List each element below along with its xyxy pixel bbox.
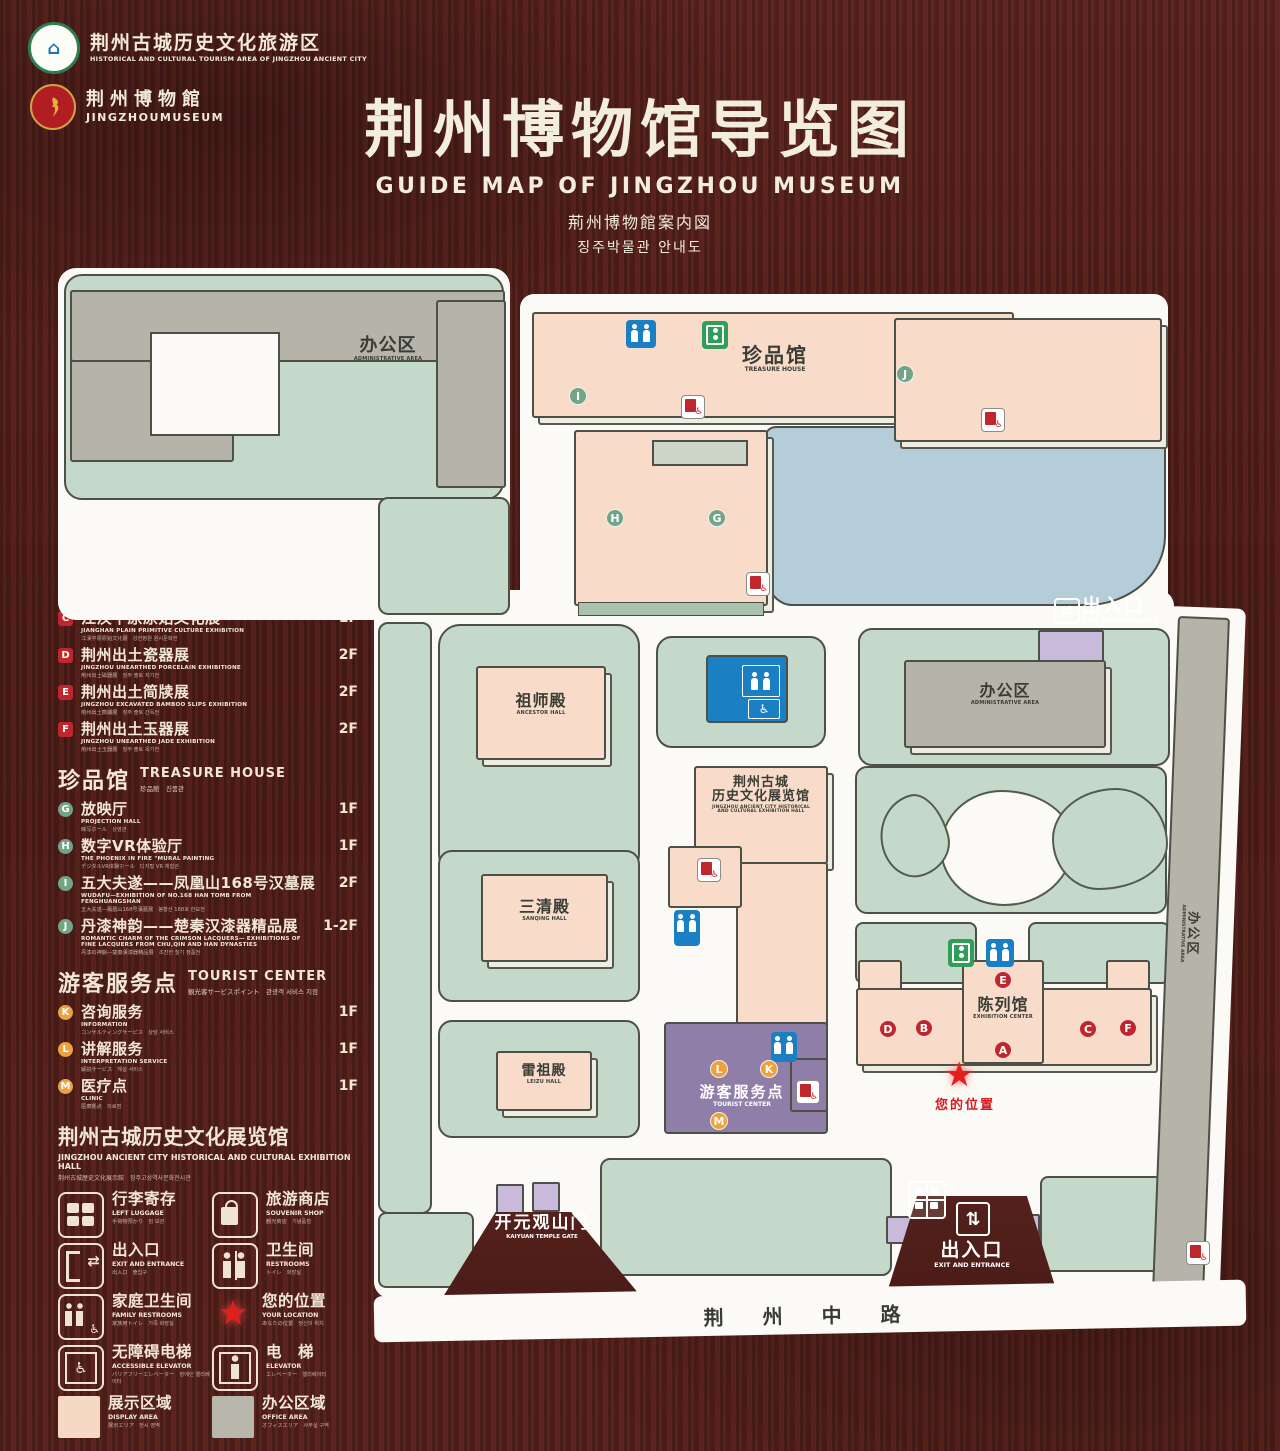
item-name-sub: 映写ホール 상영관 (81, 826, 141, 833)
admin-top-label: 办公区 ADMINISTRATIVE AREA (308, 336, 468, 362)
hall-note-en: JINGZHOU ANCIENT CITY HISTORICAL AND CUL… (58, 1153, 372, 1171)
legend-item: L 讲解服务 INTERPRETATION SERVICE 解説サービス 해설 … (58, 1041, 372, 1073)
item-name-en: CLINIC (81, 1096, 128, 1102)
item-name-sub: 解説サービス 해설 서비스 (81, 1066, 167, 1073)
ancestor-hall-label: 祖师殿 ANCESTOR HALL (476, 692, 606, 716)
symbol-name-en: ELEVATOR (266, 1363, 326, 1370)
item-name-en: JIANGHAN PLAIN PRIMITIVE CULTURE EXHIBIT… (81, 628, 244, 634)
symbol-name-sub: 家族用トイレ 가족 화장실 (112, 1320, 192, 1327)
symbol-legend-item: 出入口 EXIT AND ENTRANCE 出入口 출입구 (58, 1243, 212, 1289)
map-marker: K (760, 1060, 778, 1078)
symbol-name-sub: エレベーター 엘리베이터 (266, 1371, 326, 1378)
symbol-name-en: SOUVENIR SHOP (266, 1210, 330, 1217)
symbol-name-zh: 出入口 (112, 1243, 184, 1259)
family-restrooms-icon (58, 1294, 104, 1340)
leizu-hall-label: 雷祖殿 LEIZU HALL (496, 1064, 592, 1086)
admin-right-label: 办公区 ADMINISTRATIVE AREA (904, 682, 1106, 706)
elevator-icon (948, 939, 974, 967)
letter-badge: D (58, 648, 73, 663)
museum-logo-icon (30, 84, 76, 130)
map-marker: D (879, 1020, 897, 1038)
symbol-name-zh: 您的位置 (262, 1294, 326, 1310)
map-marker: H (606, 509, 624, 527)
symbol-legend-item: 无障碍电梯 ACCESSIBLE ELEVATOR バリアフリーエレベーター 장… (58, 1345, 212, 1391)
gate-post (532, 1182, 560, 1212)
floor-badge: 2F (339, 647, 358, 663)
exit-bottom-label: 出入口 EXIT AND ENTRANCE (902, 1240, 1042, 1269)
item-name-zh: 数字VR体验厅 (81, 838, 214, 855)
accessible-elevator-icon (981, 408, 1005, 432)
symbol-name-zh: 家庭卫生间 (112, 1294, 192, 1310)
item-name-en: JINGZHOU EXCAVATED BAMBOO SLIPS EXHIBITI… (81, 702, 247, 708)
accessible-elevator-icon (58, 1345, 104, 1391)
page-subtitle-en: GUIDE MAP OF JINGZHOU MUSEUM (240, 174, 1040, 199)
restroom-icon (674, 910, 700, 946)
your-location-icon (212, 1294, 254, 1336)
your-location-star-icon: ★ (944, 1058, 974, 1092)
item-name-zh: 荆州出土简牍展 (81, 684, 247, 701)
admin-courtyard (150, 332, 280, 436)
map-marker: A (994, 1041, 1012, 1059)
sanqing-hall-label: 三清殿 SANQING HALL (481, 898, 608, 922)
item-name-sub: 医療拠点 의료점 (81, 1103, 128, 1110)
symbol-name-sub: バリアフリーエレベーター 장애인 엘리베이터 (112, 1371, 212, 1385)
legend-item: F 荆州出土玉器展 JINGZHOU UNEARTHED JADE EXHIBI… (58, 721, 372, 753)
lawn (1040, 1176, 1170, 1272)
item-name-en: JINGZHOU UNEARTHED JADE EXHIBITION (81, 739, 215, 745)
ancient-city-exhibition-hall-label: 荆州古城 历史文化展览馆 JINGZHOU ANCIENT CITY HISTO… (690, 776, 832, 815)
exhibition-center-label: 陈列馆 EXHIBITION CENTER (928, 996, 1078, 1020)
symbol-name-en: EXIT AND ENTRANCE (112, 1261, 184, 1268)
item-name-sub: 荊州出土簡牘展 징주 출토 간독전 (81, 709, 247, 716)
restrooms-icon (212, 1243, 258, 1289)
item-name-zh: 讲解服务 (81, 1041, 167, 1058)
section-title-en: TOURIST CENTER (188, 969, 327, 984)
letter-badge: G (58, 802, 73, 817)
item-name-sub: 江漢平原原始文化展 강한평원 원시문화전 (81, 635, 244, 642)
symbol-name-zh: 办公区域 (262, 1396, 329, 1412)
symbol-name-en: LEFT LUGGAGE (112, 1210, 176, 1217)
legend-item: H 数字VR体验厅 THE PHOENIX IN FIRE "MURAL PAI… (58, 838, 372, 870)
letter-badge: L (58, 1042, 73, 1057)
map-marker: B (915, 1019, 933, 1037)
map-marker: L (710, 1060, 728, 1078)
elevator-icon (702, 321, 728, 349)
floor-badge: 1F (339, 1004, 358, 1020)
map-marker: E (994, 971, 1012, 989)
symbol-name-sub: あなたの位置 당신의 위치 (262, 1320, 326, 1327)
restroom-icon (626, 320, 656, 348)
map-marker: J (896, 365, 914, 383)
symbol-name-en: OFFICE AREA (262, 1414, 329, 1421)
tourism-area-logo-icon: ⌂ (28, 22, 80, 74)
symbol-name-en: ACCESSIBLE ELEVATOR (112, 1363, 212, 1370)
your-location-label: 您的位置 (918, 1094, 1012, 1113)
item-name-zh: 荆州出土玉器展 (81, 721, 215, 738)
floor-badge: 2F (339, 875, 358, 891)
item-name-en: JINGZHOU UNEARTHED PORCELAIN EXHIBITIONE (81, 665, 241, 671)
legend-item: G 放映厅 PROJECTION HALL 映写ホール 상영관 1F (58, 801, 372, 833)
letter-badge: K (58, 1005, 73, 1020)
exit-entrance-icon (58, 1243, 104, 1289)
symbol-name-en: FAMILY RESTROOMS (112, 1312, 192, 1319)
symbol-name-sub: 展示エリア 전시 영역 (108, 1422, 172, 1429)
item-name-zh: 医疗点 (81, 1078, 128, 1095)
legend-section-treasure-house: 珍品馆 TREASURE HOUSE 珍品館 진품관 G 放映厅 PROJECT… (58, 763, 372, 956)
symbol-name-sub: 手荷物預かり 짐 보관 (112, 1218, 176, 1225)
letter-badge: F (58, 722, 73, 737)
legend-item: I 五大夫遂——凤凰山168号汉墓展 WUDAFU—EXHIBITION OF … (58, 875, 372, 913)
accessible-elevator-icon (1186, 1241, 1210, 1265)
item-name-sub: 荊州出土磁器展 징주 출토 자기전 (81, 672, 241, 679)
legend-item: M 医疗点 CLINIC 医療拠点 의료점 1F (58, 1078, 372, 1110)
letter-badge: H (58, 839, 73, 854)
floor-badge: 2F (339, 684, 358, 700)
tourism-area-logo: ⌂ 荆州古城历史文化旅游区 HISTORICAL AND CULTURAL TO… (28, 22, 367, 74)
legend-item: D 荆州出土瓷器展 JINGZHOU UNEARTHED PORCELAIN E… (58, 647, 372, 679)
tourism-area-name-en: HISTORICAL AND CULTURAL TOURISM AREA OF … (90, 55, 367, 63)
exit-entrance-icon: ⇅ (956, 1202, 990, 1236)
symbol-name-en: DISPLAY AREA (108, 1414, 172, 1421)
accessible-elevator-icon (681, 395, 705, 419)
tourism-area-name-zh: 荆州古城历史文化旅游区 (90, 33, 367, 54)
title-block: 荆州博物馆导览图 GUIDE MAP OF JINGZHOU MUSEUM 荊州… (240, 96, 1040, 257)
admin-building-top (436, 300, 506, 488)
symbol-legend-item: 展示区域 DISPLAY AREA 展示エリア 전시 영역 (58, 1396, 212, 1438)
section-title-sub: 珍品館 진품관 (140, 783, 286, 793)
item-name-zh: 放映厅 (81, 801, 141, 818)
map-marker: M (710, 1112, 728, 1130)
symbol-name-zh: 旅游商店 (266, 1192, 330, 1208)
symbol-legend-item: 卫生间 RESTROOMS トイレ 화장실 (212, 1243, 368, 1289)
letter-badge: E (58, 685, 73, 700)
museum-name-en: JINGZHOUMUSEUM (86, 111, 224, 124)
section-title-sub: 観光客サービスポイント 관광객 서비스 지점 (188, 986, 327, 996)
family-restroom-icon: ♿ (748, 699, 780, 719)
left-luggage-icon (58, 1192, 104, 1238)
accessible-elevator-icon (796, 1080, 820, 1104)
item-name-en: ROMANTIC CHARM OF THE CRIMSON LACQUERS— … (81, 936, 311, 948)
map-marker: G (708, 509, 726, 527)
road-label: 荆 州 中 路 (374, 1292, 1246, 1338)
accessible-elevator-icon (746, 572, 770, 596)
item-name-en: PROJECTION HALL (81, 819, 141, 825)
symbol-name-en: YOUR LOCATION (262, 1312, 326, 1319)
symbol-name-sub: 観光商店 기념품점 (266, 1218, 330, 1225)
restroom-icon (771, 1032, 797, 1062)
item-name-zh: 五大夫遂——凤凰山168号汉墓展 (81, 875, 315, 892)
restroom-icon (986, 939, 1014, 967)
lawn (378, 622, 432, 1214)
item-name-en: INTERPRETATION SERVICE (81, 1059, 167, 1065)
page-subtitle-ja: 荊州博物館案内図 (240, 209, 1040, 233)
museum-name-zh: 荆州博物館 (86, 90, 224, 110)
symbol-name-sub: 出入口 출입구 (112, 1269, 184, 1276)
symbol-legend-item: 行李寄存 LEFT LUGGAGE 手荷物預かり 짐 보관 (58, 1192, 212, 1238)
item-name-en: INFORMATION (81, 1022, 174, 1028)
letter-badge: J (58, 919, 73, 934)
map-marker: C (1079, 1020, 1097, 1038)
exit-entrance-icon: ⇄ (1054, 598, 1080, 624)
symbol-legend-item: 旅游商店 SOUVENIR SHOP 観光商店 기념품점 (212, 1192, 368, 1238)
legend-item: K 咨询服务 INFORMATION コンサルティングサービス 상담 서비스 1… (58, 1004, 372, 1036)
symbol-name-zh: 电 梯 (266, 1345, 326, 1361)
symbol-name-zh: 无障碍电梯 (112, 1345, 212, 1361)
symbol-legend-item: 您的位置 YOUR LOCATION あなたの位置 당신의 위치 (212, 1294, 368, 1340)
restroom-icon (742, 665, 780, 697)
item-name-zh: 咨询服务 (81, 1004, 174, 1021)
treasure-house-building (894, 318, 1162, 442)
floor-badge: 2F (339, 721, 358, 737)
letter-badge: M (58, 1079, 73, 1094)
kaiyuan-gate-label: 开元观山门 KAIYUAN TEMPLE GATE (442, 1214, 642, 1240)
page-subtitle-ko: 징주박물관 안내도 (240, 237, 1040, 257)
exit-top-label: 出入口 EXIT AND ENTRANCE (1082, 596, 1212, 625)
entrance-pad (1038, 630, 1104, 662)
section-title-zh: 珍品馆 (58, 763, 130, 795)
lawn (378, 497, 510, 615)
letter-badge: I (58, 876, 73, 891)
item-name-zh: 丹漆神韵——楚秦汉漆器精品展 (81, 918, 311, 935)
section-title-zh: 游客服务点 (58, 966, 178, 998)
floor-badge: 1F (339, 838, 358, 854)
item-name-sub: 荊州出土玉器展 징주 출토 옥기전 (81, 746, 215, 753)
symbols-legend: 行李寄存 LEFT LUGGAGE 手荷物預かり 짐 보관 旅游商店 SOUVE… (58, 1192, 372, 1438)
admin-strip-label: 办公区 ADMINISTRATIVE AREA (1179, 904, 1205, 963)
symbol-name-zh: 卫生间 (266, 1243, 314, 1259)
exhibition-hall-note: 荆州古城历史文化展览馆 JINGZHOU ANCIENT CITY HISTOR… (58, 1120, 372, 1182)
hall-note-zh: 荆州古城历史文化展览馆 (58, 1120, 372, 1150)
symbol-name-en: RESTROOMS (266, 1261, 314, 1268)
section-title-en: TREASURE HOUSE (140, 766, 286, 781)
hedge-strip (578, 602, 764, 616)
item-name-en: WUDAFU—EXHIBITION OF NO.168 HAN TOMB FRO… (81, 893, 311, 905)
elevator-icon (212, 1345, 258, 1391)
floor-badge: 1F (339, 1041, 358, 1057)
symbol-name-zh: 行李寄存 (112, 1192, 176, 1208)
tourist-center-label: 游客服务点 TOURIST CENTER (668, 1084, 816, 1108)
item-name-sub: 丹漆の神韻—楚秦漢漆器精品展 초진한 칠기 정품전 (81, 949, 311, 956)
item-name-sub: デジタルVR体験ホール 디지털 VR 체험관 (81, 863, 214, 870)
symbol-legend-item: 电 梯 ELEVATOR エレベーター 엘리베이터 (212, 1345, 368, 1391)
symbol-legend-item: 家庭卫生间 FAMILY RESTROOMS 家族用トイレ 가족 화장실 (58, 1294, 212, 1340)
display-area-icon (58, 1396, 100, 1438)
museum-logo: 荆州博物館 JINGZHOUMUSEUM (30, 84, 224, 130)
souvenir-shop-icon (212, 1192, 258, 1238)
page-title: 荆州博物馆导览图 (240, 96, 1040, 164)
item-name-zh: 荆州出土瓷器展 (81, 647, 241, 664)
annex-building (652, 440, 748, 466)
symbol-name-sub: トイレ 화장실 (266, 1269, 314, 1276)
accessible-elevator-icon (697, 858, 721, 882)
phoenix-icon (41, 95, 65, 119)
item-name-sub: コンサルティングサービス 상담 서비스 (81, 1029, 174, 1036)
lawn (600, 1158, 892, 1276)
map-marker: I (569, 387, 587, 405)
item-name-sub: 五大夫遂—鳳凰山168号漢墓展 봉황산 168호 한묘전 (81, 906, 315, 913)
central-restroom-building: ♿ (706, 655, 788, 723)
left-luggage-restroom-icon (908, 1181, 946, 1219)
map-marker: F (1119, 1019, 1137, 1037)
legend-item: J 丹漆神韵——楚秦汉漆器精品展 ROMANTIC CHARM OF THE C… (58, 918, 372, 956)
office-area-icon (212, 1396, 254, 1438)
legend-section-tourist-center: 游客服务点 TOURIST CENTER 観光客サービスポイント 관광객 서비스… (58, 966, 372, 1110)
pond (764, 426, 1166, 606)
symbol-name-zh: 展示区域 (108, 1396, 172, 1412)
symbol-name-sub: オフィスエリア 사무실 구역 (262, 1422, 329, 1429)
symbol-legend-item: 办公区域 OFFICE AREA オフィスエリア 사무실 구역 (212, 1396, 368, 1438)
floor-badge: 1-2F (323, 918, 358, 934)
gate-post (496, 1184, 524, 1214)
floor-badge: 1F (339, 801, 358, 817)
item-name-en: THE PHOENIX IN FIRE "MURAL PAINTING (81, 856, 214, 862)
legend-item: E 荆州出土简牍展 JINGZHOU EXCAVATED BAMBOO SLIP… (58, 684, 372, 716)
legend-panel: 陈列馆 EXHIBITION CENTER 陳列館 진열관 A 《火中的凤凰》壁… (58, 498, 372, 1438)
floor-badge: 1F (339, 1078, 358, 1094)
hall-note-sub: 荆州古城歴史文化展示館 징주고성역사문화전시관 (58, 1173, 372, 1182)
